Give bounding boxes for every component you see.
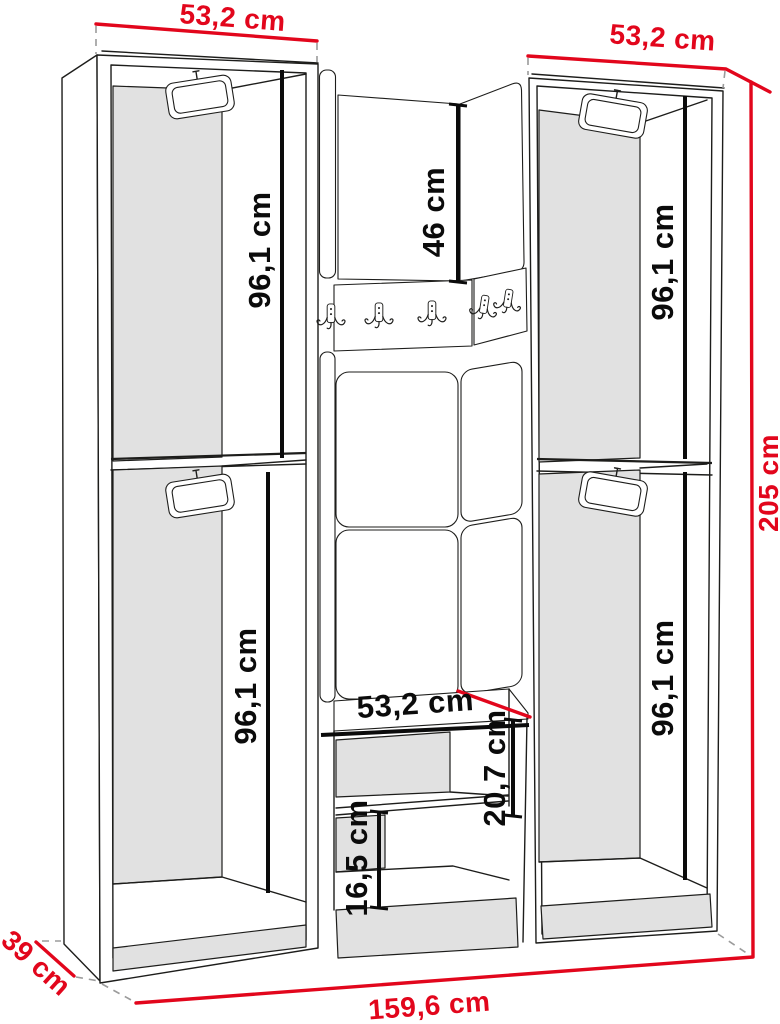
back-cushion-angled <box>461 361 522 523</box>
right-upper-back-panel <box>539 110 640 462</box>
left-lower-back-panel <box>113 466 222 884</box>
right-wardrobe <box>529 74 724 943</box>
left-upper-back-panel <box>113 86 222 461</box>
back-cushion-angled <box>461 517 522 695</box>
dim-shelf-gap-lower-label: 16,5 cm <box>339 799 374 916</box>
diagram-canvas: 96,1 cm 96,1 cm 96,1 cm 96,1 cm 46 cm 53… <box>0 0 780 1024</box>
dim-shelf-gap-upper-label: 20,7 cm <box>477 709 512 826</box>
back-cushion <box>336 372 458 527</box>
dim-right-lower-label: 96,1 cm <box>645 619 680 736</box>
dim-total-height-label: 205 cm <box>753 434 780 532</box>
dim-left-upper-label: 96,1 cm <box>242 191 277 308</box>
back-cushion <box>336 530 458 699</box>
left-wardrobe <box>62 51 318 983</box>
wardrobe-dimension-diagram: 96,1 cm 96,1 cm 96,1 cm 96,1 cm 46 cm 53… <box>0 0 780 1024</box>
bench-back-panel-upper <box>336 732 450 797</box>
dim-right-upper-label: 96,1 cm <box>645 203 680 320</box>
dim-top-panel-label: 46 cm <box>416 167 451 257</box>
dim-left-lower-label: 96,1 cm <box>228 627 263 744</box>
left-wardrobe-side-panel <box>62 55 100 981</box>
middle-left-wall-upper <box>320 70 336 278</box>
middle-left-wall-lower <box>320 352 335 702</box>
right-lower-back-panel <box>539 470 640 862</box>
middle-top-panel-angled <box>460 83 524 281</box>
hook-rail <box>334 280 472 351</box>
